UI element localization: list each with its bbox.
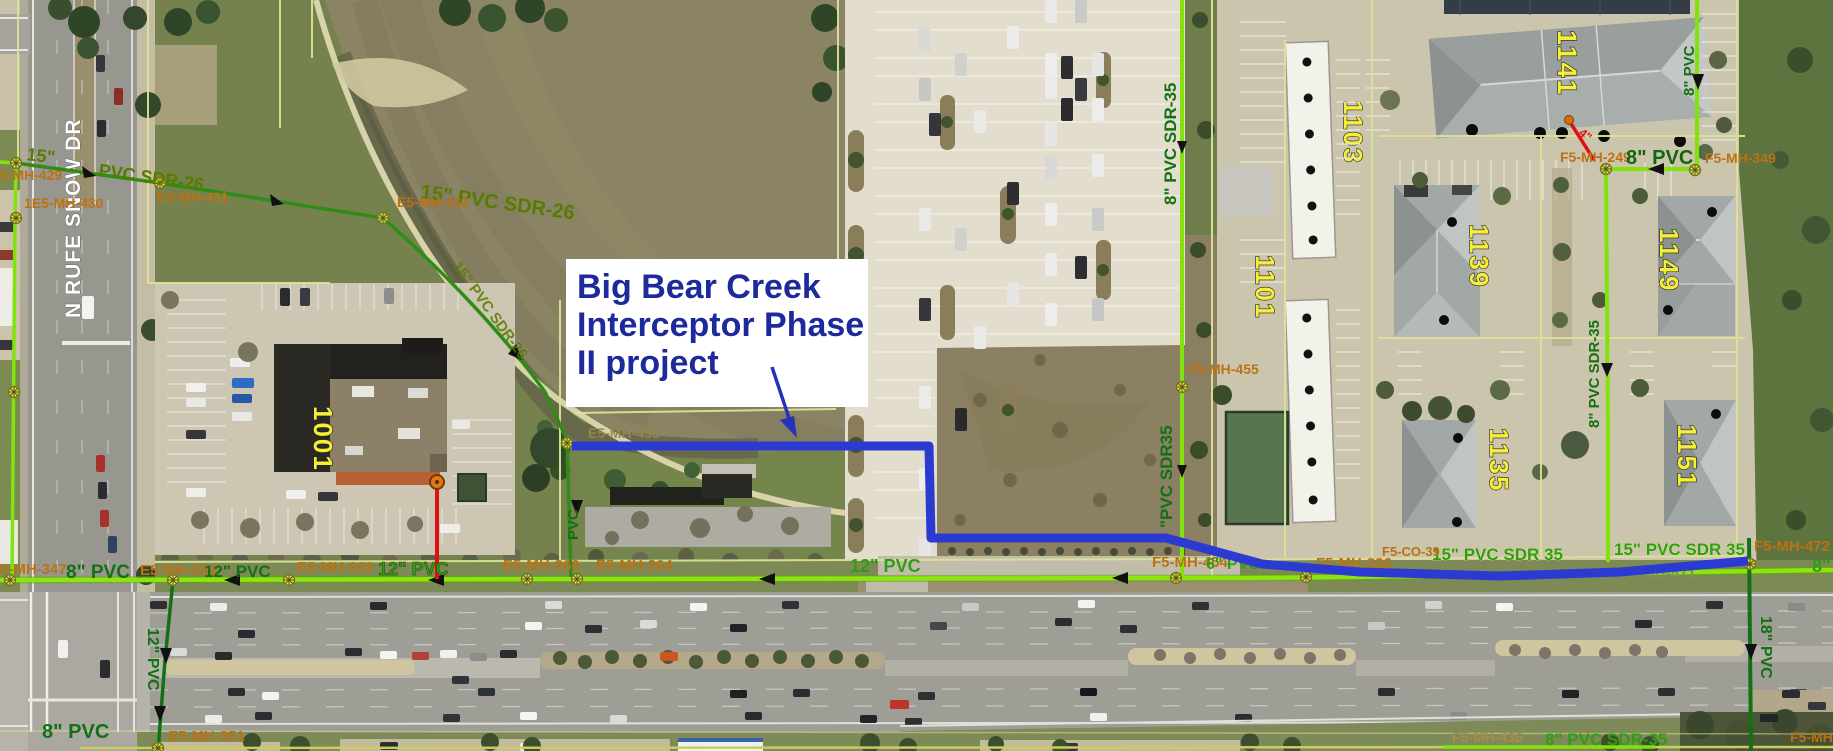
svg-text:E5-MH-433: E5-MH-433 (588, 425, 660, 441)
svg-text:18" PVC: 18" PVC (1757, 616, 1774, 679)
svg-text:F5-MH-249: F5-MH-249 (1560, 149, 1631, 165)
svg-text:F5-MH-349: F5-MH-349 (1705, 150, 1776, 166)
svg-text:8": 8" (1812, 556, 1831, 576)
svg-text:N RUFE SNOW DR: N RUFE SNOW DR (62, 119, 85, 319)
svg-text:8" PVC SDR-35: 8" PVC SDR-35 (1545, 730, 1667, 749)
svg-text:E5-MH-432: E5-MH-432 (397, 194, 469, 210)
svg-text:1151: 1151 (1672, 424, 1702, 488)
svg-text:8" PVC: 8" PVC (66, 562, 130, 583)
svg-text:F5-CO-39: F5-CO-39 (1382, 544, 1440, 559)
svg-text:12" PVC: 12" PVC (144, 628, 161, 691)
svg-text:1101: 1101 (1250, 255, 1280, 319)
svg-text:15" PVC SDR 35: 15" PVC SDR 35 (1614, 540, 1745, 559)
svg-text:15": 15" (26, 144, 57, 167)
svg-text:F5-MH-437: F5-MH-437 (1790, 729, 1833, 745)
svg-text:1E5-MH-430: 1E5-MH-430 (24, 195, 104, 211)
svg-text:"PVC SDR35: "PVC SDR35 (1157, 425, 1176, 528)
svg-text:E5-MH-260: E5-MH-260 (503, 557, 580, 574)
svg-text:8" PVC SDR-35: 8" PVC SDR-35 (1161, 83, 1180, 205)
svg-text:8" PVC: 8" PVC (1681, 45, 1698, 96)
svg-text:12" PVC: 12" PVC (378, 559, 449, 579)
svg-text:II project: II project (577, 344, 719, 382)
svg-text:F5-MH-472: F5-MH-472 (1754, 538, 1830, 555)
svg-text:Big Bear Creek: Big Bear Creek (577, 268, 821, 306)
svg-text:Interceptor Phase: Interceptor Phase (577, 306, 864, 344)
svg-text:E5-MH-262: E5-MH-262 (297, 559, 374, 576)
svg-text:E5-MH-431: E5-MH-431 (157, 189, 229, 205)
svg-text:8" PVC SDR-35: 8" PVC SDR-35 (1586, 320, 1603, 428)
svg-text:1103: 1103 (1338, 100, 1368, 164)
svg-text:1139: 1139 (1464, 224, 1494, 288)
svg-text:E5-MH-351: E5-MH-351 (168, 728, 245, 745)
svg-text:F5-MH-455: F5-MH-455 (1188, 361, 1259, 377)
svg-text:8" PVC: 8" PVC (42, 721, 109, 743)
svg-text:F5-MH-436: F5-MH-436 (1452, 729, 1523, 745)
svg-text:8" PVC: 8" PVC (1626, 147, 1693, 169)
svg-text:15" PVC SDR 35: 15" PVC SDR 35 (1432, 545, 1563, 564)
svg-text:1135: 1135 (1484, 428, 1514, 492)
svg-text:PVC: PVC (565, 509, 582, 540)
svg-text:1001: 1001 (308, 406, 338, 472)
svg-text:12" PVC: 12" PVC (850, 556, 921, 576)
svg-text:1149: 1149 (1654, 228, 1684, 292)
svg-text:5-MH-347: 5-MH-347 (0, 561, 67, 578)
svg-text:E5-MH-264: E5-MH-264 (596, 557, 673, 574)
svg-text:12" PVC: 12" PVC (204, 562, 271, 581)
svg-text:5-MH-429: 5-MH-429 (0, 167, 62, 183)
svg-text:1141: 1141 (1552, 30, 1582, 97)
